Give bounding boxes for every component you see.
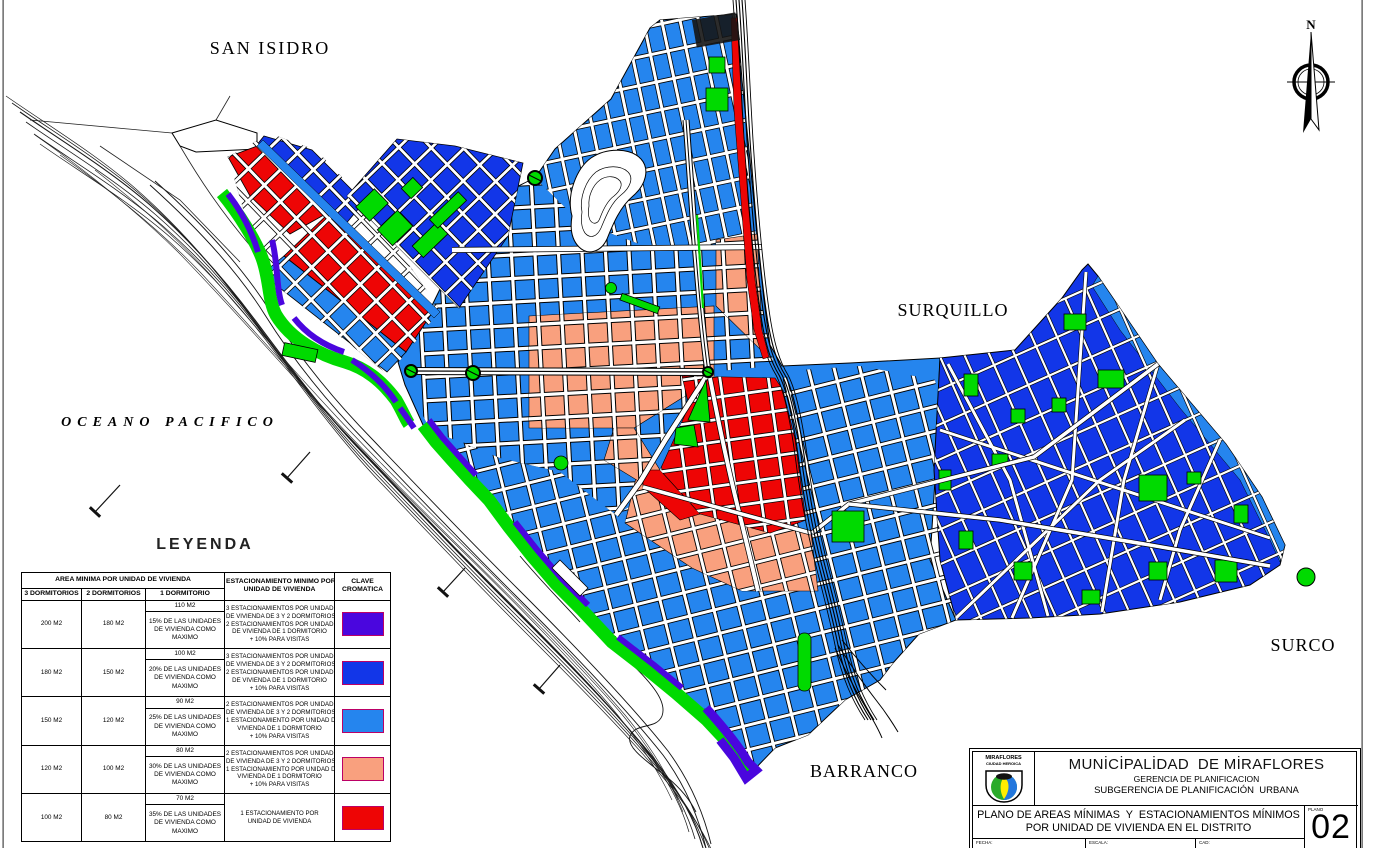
svg-text:SAN ISIDRO: SAN ISIDRO bbox=[210, 38, 331, 58]
svg-text:N: N bbox=[1306, 17, 1316, 32]
svg-text:BARRANCO: BARRANCO bbox=[810, 761, 918, 781]
svg-text:OCEANO PACIFICO: OCEANO PACIFICO bbox=[61, 415, 279, 430]
svg-text:SURCO: SURCO bbox=[1270, 635, 1335, 655]
svg-text:SURQUILLO: SURQUILLO bbox=[898, 300, 1009, 320]
